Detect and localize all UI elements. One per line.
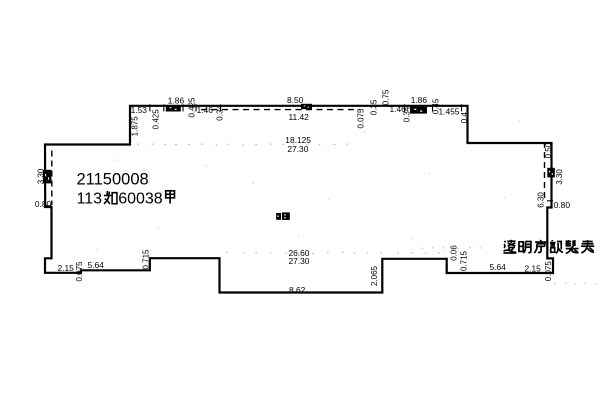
svg-text:0.80: 0.80 [35, 199, 52, 209]
svg-text:0.50: 0.50 [544, 142, 553, 158]
svg-text:2.15: 2.15 [525, 263, 542, 273]
svg-text:5.64: 5.64 [88, 260, 105, 270]
svg-text:11.42: 11.42 [289, 112, 310, 122]
svg-text:1.53: 1.53 [131, 105, 148, 115]
svg-text:0.075: 0.075 [357, 108, 366, 129]
svg-text:0.4: 0.4 [460, 112, 469, 124]
svg-text:21150008: 21150008 [77, 171, 149, 189]
svg-text:3.30: 3.30 [555, 169, 564, 185]
svg-text:27.30: 27.30 [289, 256, 310, 266]
svg-text:2.065: 2.065 [370, 265, 379, 286]
svg-text:0.425: 0.425 [151, 109, 160, 130]
svg-text:0.075: 0.075 [544, 261, 553, 282]
svg-text:0.715: 0.715 [142, 249, 151, 270]
svg-text:113: 113 [77, 190, 103, 207]
svg-text:0.45: 0.45 [431, 98, 440, 114]
svg-text:5.64: 5.64 [490, 262, 507, 272]
svg-text:0.34: 0.34 [216, 105, 225, 121]
svg-text:1.875: 1.875 [131, 116, 140, 137]
svg-text:1.86: 1.86 [168, 96, 185, 106]
svg-text:2.15: 2.15 [58, 263, 75, 273]
svg-text:8.62: 8.62 [289, 285, 306, 295]
svg-text:1.86: 1.86 [411, 95, 428, 105]
svg-text:0.06: 0.06 [450, 245, 459, 261]
svg-text:8.50: 8.50 [287, 95, 304, 105]
svg-text:0.80: 0.80 [554, 200, 571, 210]
svg-text:0.34: 0.34 [403, 106, 412, 122]
svg-text:0.35: 0.35 [370, 99, 379, 115]
svg-text:0.75: 0.75 [382, 89, 391, 105]
svg-text:0.075: 0.075 [75, 261, 84, 282]
svg-text:1.455: 1.455 [439, 107, 460, 117]
svg-text:0.715: 0.715 [460, 250, 469, 271]
svg-text:60038: 60038 [118, 190, 163, 207]
svg-text:3.30: 3.30 [37, 168, 46, 184]
svg-text:1.46: 1.46 [197, 105, 214, 115]
svg-text:6.30: 6.30 [537, 192, 546, 208]
svg-text:0.425: 0.425 [188, 97, 197, 118]
svg-text:27.30: 27.30 [287, 144, 308, 154]
